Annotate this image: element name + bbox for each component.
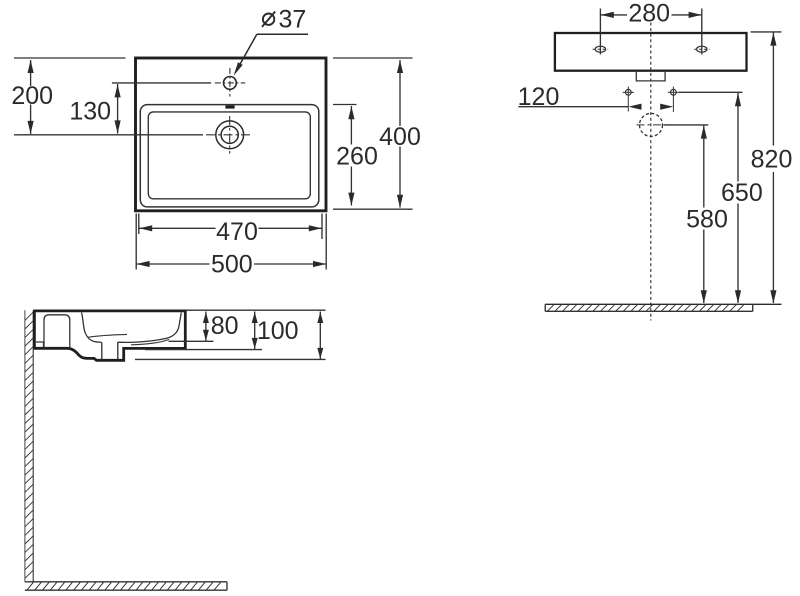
svg-text:500: 500 [211, 250, 253, 278]
svg-text:100: 100 [257, 317, 299, 345]
svg-text:400: 400 [379, 123, 421, 151]
svg-text:470: 470 [216, 218, 258, 246]
svg-text:820: 820 [751, 146, 793, 174]
svg-text:37: 37 [279, 6, 307, 34]
svg-text:650: 650 [721, 179, 763, 207]
svg-text:80: 80 [211, 312, 239, 340]
svg-text:580: 580 [686, 205, 728, 233]
svg-text:130: 130 [69, 98, 111, 126]
svg-text:260: 260 [336, 142, 378, 170]
svg-text:200: 200 [11, 82, 53, 110]
svg-text:280: 280 [628, 0, 670, 27]
svg-text:120: 120 [518, 83, 560, 111]
